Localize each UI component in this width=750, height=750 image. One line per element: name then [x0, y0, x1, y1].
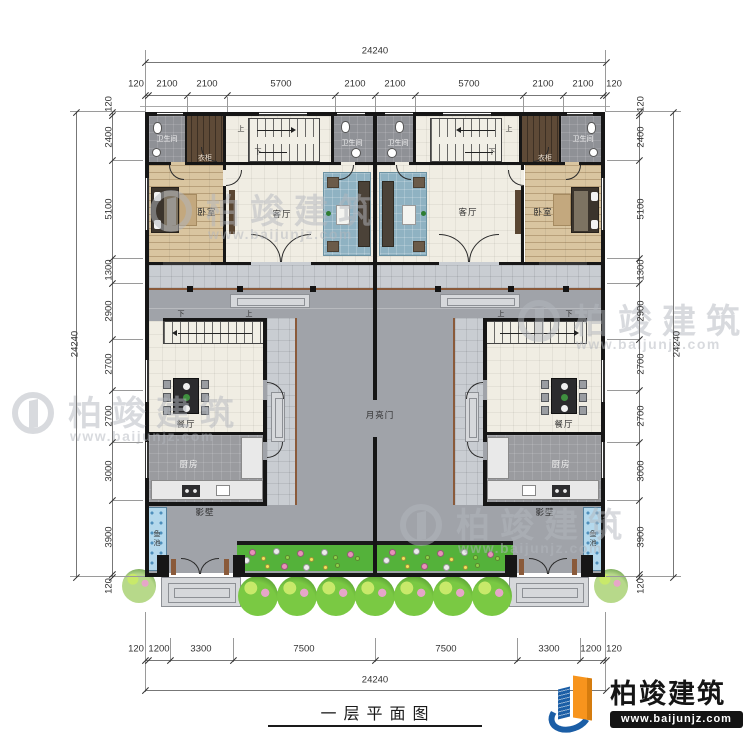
brand-url: www.baijunjz.com	[610, 711, 743, 728]
veranda-post	[237, 286, 243, 292]
garden-flower	[347, 551, 354, 558]
garden-flower	[405, 564, 410, 569]
wall-bath-closet-right	[559, 116, 561, 162]
window-west-3	[145, 442, 149, 478]
wall-island-right-w1	[483, 318, 487, 380]
garden-flower	[443, 564, 450, 571]
dim-left-seg-2: 5100	[104, 198, 115, 219]
kitchen-counter-left	[151, 480, 263, 500]
gate-right-flank-w	[505, 555, 517, 577]
label-stair-up-tl: 上	[238, 124, 245, 134]
floor-plan-canvas: 24240 120 2100 2100 5700 2100 2100 5700 …	[0, 0, 750, 750]
label-bathroom-center-left: 卫生间	[342, 138, 363, 148]
wall-island-left-e1	[263, 318, 267, 380]
label-closet-right: 衣柜	[538, 153, 552, 163]
window-east-1	[601, 178, 605, 230]
dim-bot-total: 24240	[362, 675, 388, 686]
dim-extension-stub	[607, 339, 639, 340]
garden-flower	[335, 563, 340, 568]
wall-island-right-w3	[483, 460, 487, 506]
label-bathroom-right: 卫生间	[573, 134, 594, 144]
dim-extension-stub	[187, 97, 188, 112]
label-fish-pond-left: 鱼池	[152, 530, 162, 548]
walkway-rail-right	[453, 318, 455, 505]
wall-island-right-w2	[483, 400, 487, 442]
window-top-6	[567, 112, 593, 116]
garden-bed-right	[377, 541, 513, 571]
gate-left-flank-e	[233, 555, 245, 577]
dim-extension-line	[606, 576, 681, 577]
veranda-steps-right	[440, 294, 520, 308]
bush	[472, 576, 512, 616]
dim-extension-stub	[607, 283, 639, 284]
veranda-post	[435, 286, 441, 292]
garden-flower	[449, 557, 454, 562]
label-dining-left: 餐厅	[176, 418, 195, 430]
kitchen-counter-right	[487, 480, 599, 500]
title-underline	[268, 725, 482, 727]
dim-bot-seg-6: 1200	[580, 644, 601, 655]
sofa-rug-right	[379, 172, 427, 256]
window-top-4	[385, 112, 413, 116]
kitchen-fridge-right	[487, 437, 509, 479]
garden-flower	[333, 555, 338, 560]
label-stair-up-dr: 上	[498, 309, 505, 319]
wall-island-left-e3	[263, 460, 267, 506]
wall-island-left-e2	[263, 400, 267, 442]
label-dining-right: 餐厅	[554, 418, 573, 430]
veranda-post	[508, 286, 514, 292]
dining-table-left	[173, 378, 199, 414]
dim-extension-stub	[227, 97, 228, 112]
dim-line-left-segments	[112, 112, 113, 578]
dim-left-seg-3: 1300	[104, 259, 115, 280]
dim-bot-seg-2: 3300	[190, 644, 211, 655]
garden-flower	[261, 556, 266, 561]
gate-left-flank-w	[157, 555, 169, 577]
label-fish-pond-right: 鱼池	[588, 530, 598, 548]
floor-plan: 卫生间 衣柜 卫生间 卫生间 衣柜 卫生间 卧室 客厅 客厅 卧室 月亮门 餐厅…	[145, 112, 605, 612]
label-stair-down-dl: 下	[178, 309, 185, 319]
dim-left-seg-6: 2700	[104, 405, 115, 426]
veranda-post	[310, 286, 316, 292]
label-bedroom-left: 卧室	[197, 206, 216, 218]
wall-party-south	[373, 437, 377, 577]
veranda-steps-left	[230, 294, 310, 308]
garden-bed-left	[237, 541, 373, 571]
garden-flower	[309, 557, 314, 562]
garden-flower	[383, 557, 390, 564]
bush	[394, 576, 434, 616]
window-west-2	[145, 360, 149, 402]
dim-right-seg-3: 1300	[636, 259, 647, 280]
dim-extension-stub	[112, 390, 143, 391]
label-stair-up-tr: 上	[506, 124, 513, 134]
dim-extension-stub	[112, 500, 143, 501]
veranda-post	[187, 286, 193, 292]
chair	[541, 380, 549, 389]
garden-flower	[463, 565, 468, 570]
label-bathroom-left: 卫生间	[157, 134, 178, 144]
garden-flower	[389, 549, 396, 556]
label-screen-wall-left: 影壁	[195, 506, 214, 518]
garden-flower	[273, 548, 280, 555]
garden-flower	[475, 563, 480, 568]
wall-living-south	[145, 262, 605, 265]
dim-top-seg-5: 2100	[384, 79, 405, 90]
dim-tick	[603, 59, 610, 66]
gate-right-flank-e	[581, 555, 593, 577]
wall-dining-kitchen-left	[149, 432, 263, 435]
walkway-rail-left	[295, 318, 297, 505]
window-top-1	[157, 112, 183, 116]
dim-bot-seg-0: 120	[128, 644, 144, 655]
walkway-steps-left	[271, 392, 285, 442]
dim-extension-line	[145, 50, 146, 112]
dim-extension-stub	[607, 500, 639, 501]
dim-line-right-segments	[639, 112, 640, 578]
wall-closet-hall-left	[223, 116, 226, 162]
watermark-logo-icon	[12, 392, 54, 434]
dim-extension-stub	[607, 390, 639, 391]
toilet-center-right	[395, 121, 404, 133]
drawing-title: 一层平面图	[320, 700, 435, 724]
dim-top-seg-9: 120	[606, 79, 622, 90]
dim-top-total: 24240	[362, 46, 388, 57]
gate-right-steps	[509, 577, 589, 607]
toilet-center-left	[341, 121, 350, 133]
dim-right-seg-1: 2400	[636, 126, 647, 147]
dim-right-seg-7: 3000	[636, 460, 647, 481]
dim-right-seg-4: 2900	[636, 300, 647, 321]
dim-left-seg-8: 3900	[104, 526, 115, 547]
dim-bot-seg-3: 7500	[293, 644, 314, 655]
toilet-right	[587, 122, 596, 134]
dining-table-right	[551, 378, 577, 414]
label-bathroom-center-right: 卫生间	[388, 138, 409, 148]
dim-extension-stub	[112, 160, 143, 161]
label-closet-left: 衣柜	[198, 153, 212, 163]
garden-flower	[355, 556, 360, 561]
garden-flower	[421, 563, 428, 570]
dim-right-seg-6: 2700	[636, 405, 647, 426]
garden-flower	[437, 550, 444, 557]
window-west-1	[145, 178, 149, 230]
dim-extension-stub	[563, 97, 564, 112]
wall-dining-kitchen-right	[487, 432, 601, 435]
dim-left-seg-4: 2900	[104, 300, 115, 321]
brand-logo: 柏竣建筑 www.baijunjz.com	[546, 668, 748, 744]
dim-extension-stub	[607, 442, 639, 443]
label-living-right: 客厅	[458, 206, 477, 218]
garden-flower	[321, 549, 328, 556]
chair	[579, 406, 587, 415]
wall-bathrow-south	[149, 162, 601, 165]
dim-top-seg-4: 2100	[344, 79, 365, 90]
window-bedroom-left	[163, 262, 211, 265]
chair	[541, 393, 549, 402]
sink-center-right	[387, 148, 397, 158]
dim-right-seg-2: 5100	[636, 198, 647, 219]
dim-top-seg-0: 120	[128, 79, 144, 90]
garden-flower	[285, 555, 290, 560]
living-left-door-gap	[251, 262, 311, 265]
toilet-left	[153, 122, 162, 134]
bush	[316, 576, 356, 616]
bush	[277, 576, 317, 616]
garden-flower	[413, 548, 420, 555]
dim-extension-line	[145, 612, 146, 692]
dim-left-seg-1: 2400	[104, 126, 115, 147]
wall-closet-hall-right	[519, 116, 522, 162]
garden-flower	[281, 563, 288, 570]
label-stair-down-tr: 下	[489, 147, 496, 157]
garden-flower	[323, 565, 328, 570]
dim-extension-stub	[112, 339, 143, 340]
chair	[201, 406, 209, 415]
garden-flower	[401, 556, 406, 561]
sink-center-left	[351, 148, 361, 158]
chair	[163, 380, 171, 389]
dim-extension-stub	[607, 160, 639, 161]
chair	[579, 393, 587, 402]
sofa-rug-left	[323, 172, 371, 256]
label-stair-up-dl: 上	[246, 309, 253, 319]
bed-rug-right	[553, 194, 571, 226]
stairs-dining-right	[485, 321, 587, 344]
brand-logo-icon	[546, 672, 606, 736]
dim-extension-stub	[415, 97, 416, 112]
dim-left-seg-7: 3000	[104, 460, 115, 481]
label-kitchen-left: 厨房	[179, 458, 198, 470]
stairs-dining-left	[163, 321, 265, 344]
bush	[433, 576, 473, 616]
label-stair-down-tl: 下	[255, 147, 262, 157]
dim-right-total: 24240	[672, 331, 683, 357]
wall-cbath-right	[413, 116, 416, 162]
dim-extension-stub	[607, 258, 639, 259]
window-east-3	[601, 442, 605, 478]
chair	[201, 380, 209, 389]
tv-console-left	[229, 190, 235, 234]
window-top-5	[443, 112, 491, 116]
bush	[238, 576, 278, 616]
dim-top-seg-3: 5700	[270, 79, 291, 90]
dim-bot-seg-7: 120	[606, 644, 622, 655]
gate-left-post-1	[171, 559, 176, 575]
garden-flower	[265, 564, 270, 569]
window-east-2	[601, 360, 605, 402]
wall-cbath-left	[331, 116, 334, 162]
dim-left-total: 24240	[70, 331, 81, 357]
chair	[579, 380, 587, 389]
chair	[541, 406, 549, 415]
kitchen-fridge-left	[241, 437, 263, 479]
chair	[201, 393, 209, 402]
dim-extension-stub	[335, 97, 336, 112]
dim-line-bottom-total	[145, 690, 606, 691]
window-bedroom-right	[539, 262, 587, 265]
sink-right	[589, 148, 598, 157]
label-kitchen-right: 厨房	[551, 458, 570, 470]
dim-top-seg-8: 2100	[572, 79, 593, 90]
dim-left-seg-5: 2700	[104, 353, 115, 374]
label-screen-wall-right: 影壁	[535, 506, 554, 518]
dim-bot-seg-1: 1200	[148, 644, 169, 655]
window-top-3	[337, 112, 365, 116]
dim-line-top-total	[145, 62, 606, 63]
walkway-steps-right	[465, 392, 479, 442]
veranda-post	[563, 286, 569, 292]
living-right-door-gap	[439, 262, 499, 265]
dim-top-seg-1: 2100	[156, 79, 177, 90]
garden-flower	[495, 556, 500, 561]
dim-top-seg-7: 2100	[532, 79, 553, 90]
gate-left-steps	[161, 577, 241, 607]
dim-right-seg-5: 2700	[636, 353, 647, 374]
bed-right	[571, 187, 599, 233]
dim-extension-stub	[375, 97, 376, 112]
brand-name: 柏竣建筑	[610, 672, 726, 711]
garden-flower	[461, 549, 468, 556]
gate-left-post-2	[224, 559, 229, 575]
garden-flower	[249, 549, 256, 556]
bed-rug-left	[179, 194, 197, 226]
chair	[163, 406, 171, 415]
bed-left	[151, 187, 179, 233]
garden-flower	[473, 555, 478, 560]
garden-flower	[303, 564, 310, 571]
wall-bath-closet-left	[185, 116, 187, 162]
dim-bot-seg-4: 7500	[435, 644, 456, 655]
bush	[355, 576, 395, 616]
garden-flower	[487, 551, 494, 558]
chair	[163, 393, 171, 402]
label-moon-gate: 月亮门	[366, 409, 395, 421]
dim-top-seg-6: 5700	[458, 79, 479, 90]
label-stair-down-dr: 下	[566, 309, 573, 319]
garden-flower	[297, 550, 304, 557]
gate-right-post-1	[519, 559, 524, 575]
wall-party-north	[373, 112, 377, 400]
dim-bot-seg-5: 3300	[538, 644, 559, 655]
dim-extension-stub	[523, 97, 524, 112]
label-bedroom-right: 卧室	[533, 206, 552, 218]
window-top-2	[259, 112, 307, 116]
dim-extension-stub	[112, 258, 143, 259]
gate-right-post-2	[572, 559, 577, 575]
dim-right-seg-8: 3900	[636, 526, 647, 547]
sink-left	[152, 148, 161, 157]
label-living-left: 客厅	[272, 208, 291, 220]
garden-flower	[425, 555, 430, 560]
dim-top-seg-2: 2100	[196, 79, 217, 90]
dim-extension-stub	[112, 442, 143, 443]
dim-extension-stub	[112, 283, 143, 284]
